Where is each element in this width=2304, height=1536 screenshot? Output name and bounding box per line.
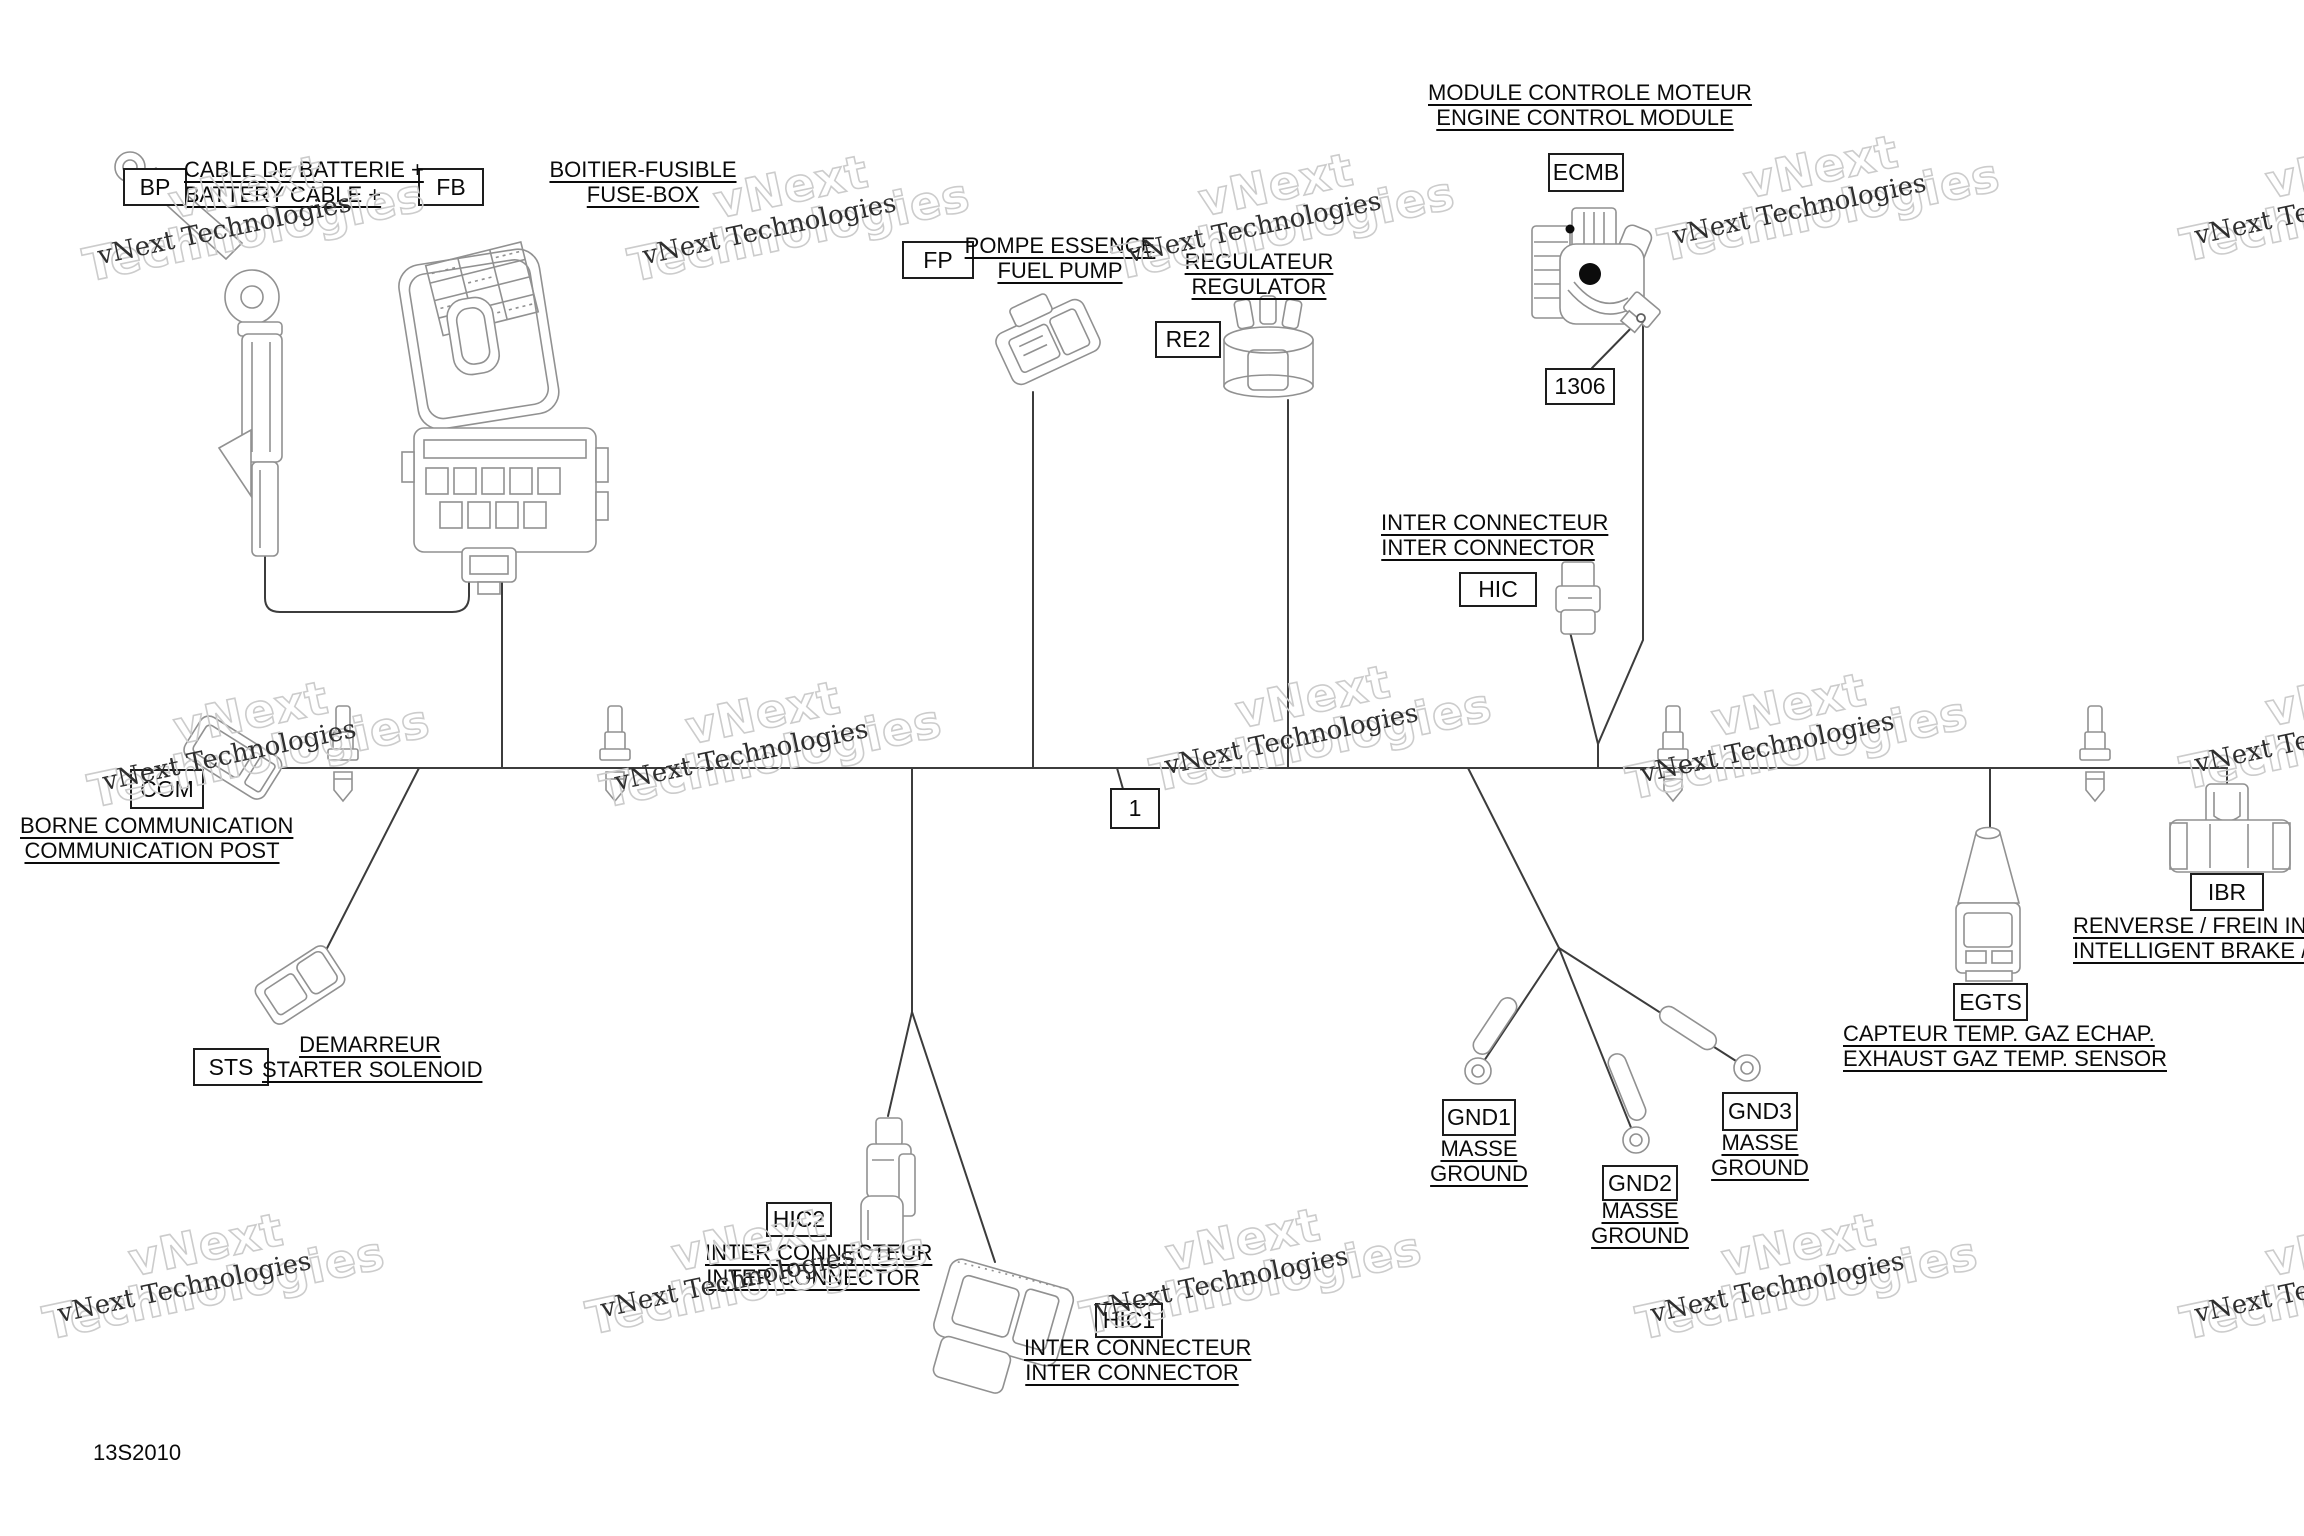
label-hic2: INTER CONNECTEURINTER CONNECTOR (705, 1240, 921, 1290)
ibr-connector-drawing (2170, 784, 2290, 872)
callout-egts[interactable]: EGTS (1953, 983, 2028, 1021)
callout-gnd1[interactable]: GND1 (1442, 1099, 1516, 1136)
callout-1[interactable]: 1 (1110, 788, 1160, 829)
fuel-pump-connector-drawing (985, 280, 1103, 388)
wire-gnd1-leg (1478, 948, 1559, 1070)
callout-com[interactable]: COM (130, 769, 204, 809)
callout-hic1[interactable]: HIC1 (1095, 1303, 1163, 1338)
label-com: BORNE COMMUNICATIONCOMMUNICATION POST (20, 813, 284, 863)
label-sts: DEMARREURSTARTER SOLENOID (262, 1032, 478, 1082)
callout-re2-code: RE2 (1166, 326, 1211, 353)
callout-bp-code: BP (140, 174, 171, 201)
wire-hic-drop (1570, 632, 1598, 744)
callout-ecmb[interactable]: ECMB (1548, 153, 1624, 192)
callout-hic2[interactable]: HIC2 (766, 1202, 832, 1237)
callout-hic[interactable]: HIC (1459, 572, 1537, 607)
label-gnd1: MASSEGROUND (1430, 1136, 1528, 1186)
callout-gnd2-code: GND2 (1608, 1170, 1672, 1197)
wire-battery-to-fusebox (265, 556, 469, 612)
callout-hic-code: HIC (1478, 576, 1518, 603)
callout-sts-code: STS (209, 1054, 254, 1081)
label-hic: INTER CONNECTEURINTER CONNECTOR (1381, 510, 1595, 560)
callout-ibr-code: IBR (2208, 879, 2246, 906)
label-egts: CAPTEUR TEMP. GAZ ECHAP.EXHAUST GAZ TEMP… (1843, 1021, 2141, 1071)
wire-hic2 (888, 768, 912, 1116)
label-fp: POMPE ESSENCEFUEL PUMP (952, 233, 1168, 283)
wire-hic1 (912, 1012, 995, 1262)
fuse-box-drawing (396, 242, 608, 594)
wire-gnd2-leg (1559, 948, 1636, 1140)
callout-ibr[interactable]: IBR (2190, 873, 2264, 911)
inline-connector (1658, 706, 1688, 801)
hic-connector-drawing (1556, 562, 1600, 634)
callout-gnd2[interactable]: GND2 (1602, 1165, 1678, 1201)
hic2-connector-drawing (861, 1118, 915, 1250)
callout-re2[interactable]: RE2 (1155, 321, 1221, 358)
label-fb: BOITIER-FUSIBLEFUSE-BOX (545, 157, 741, 207)
wire-main-harness (257, 768, 2227, 788)
inline-connector (2080, 706, 2110, 801)
inline-connector (600, 706, 630, 801)
ecm-drawing (1532, 208, 1661, 337)
callout-1306[interactable]: 1306 (1545, 368, 1615, 405)
inline-connectors (328, 706, 2110, 801)
wire-ground-trunk (1468, 768, 1559, 948)
callout-1-code: 1 (1129, 795, 1142, 822)
callout-sts[interactable]: STS (193, 1048, 269, 1086)
callout-hic1-code: HIC1 (1103, 1307, 1155, 1334)
label-gnd2: MASSEGROUND (1591, 1198, 1689, 1248)
callout-egts-code: EGTS (1959, 989, 2022, 1016)
label-ibr: RENVERSE / FREIN INTEINTELLIGENT BRAKE /… (2073, 913, 2304, 963)
wire-gnd3-leg (1559, 948, 1747, 1068)
callout-hic2-code: HIC2 (773, 1206, 825, 1233)
wire-starter-solenoid (320, 768, 419, 962)
callout-fb[interactable]: FB (418, 168, 484, 206)
callout-gnd3[interactable]: GND3 (1722, 1092, 1798, 1131)
callout-com-code: COM (140, 776, 194, 803)
label-re2: REGULATEURREGULATOR (1178, 249, 1340, 299)
callout-1306-code: 1306 (1554, 373, 1605, 400)
callout-fp-code: FP (923, 247, 952, 274)
wiring-diagram-page: BP FB FP RE2 ECMB 1306 1 HIC COM STS HIC… (0, 0, 2304, 1536)
battery-cable-drawing (115, 152, 282, 556)
label-bp: CABLE DE BATTERIE +BATTERY CABLE + (184, 157, 382, 207)
callout-fb-code: FB (436, 174, 465, 201)
regulator-drawing (1224, 296, 1313, 397)
wire-callout1-leader (1117, 768, 1123, 789)
sts-connector-drawing (252, 943, 348, 1027)
callout-gnd1-code: GND1 (1447, 1104, 1511, 1131)
callout-gnd3-code: GND3 (1728, 1098, 1792, 1125)
label-ecmb: MODULE CONTROLE MOTEURENGINE CONTROL MOD… (1428, 80, 1742, 130)
callout-bp[interactable]: BP (123, 168, 187, 206)
drawing-number: 13S2010 (93, 1440, 181, 1466)
callout-ecmb-code: ECMB (1553, 159, 1619, 186)
egts-sensor-drawing (1956, 828, 2020, 982)
label-hic1: INTER CONNECTEURINTER CONNECTOR (1024, 1335, 1240, 1385)
inline-connector (328, 706, 358, 801)
label-gnd3: MASSEGROUND (1711, 1130, 1809, 1180)
